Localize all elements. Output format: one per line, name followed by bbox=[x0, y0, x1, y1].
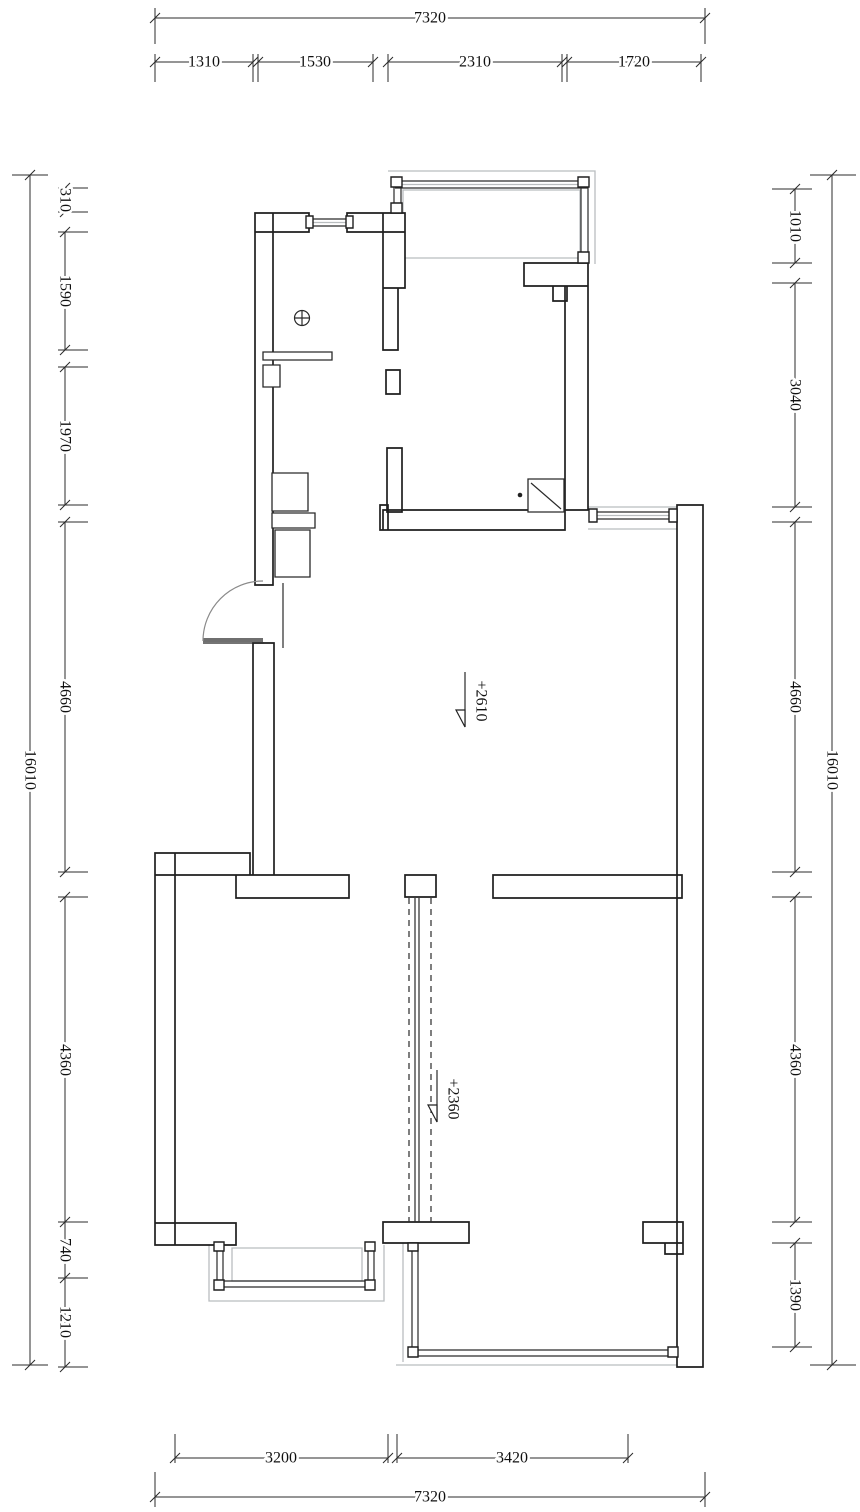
level-mark-2: +2360 bbox=[428, 1070, 462, 1122]
wall-detail-line bbox=[283, 483, 561, 1222]
dim-label: 4360 bbox=[787, 1044, 804, 1076]
dim-label: 4360 bbox=[57, 1044, 74, 1076]
elevation-flag-icon bbox=[456, 710, 465, 727]
dim-line bbox=[170, 1434, 633, 1463]
dim-label: 7320 bbox=[414, 10, 446, 27]
door-swing-arc bbox=[203, 581, 263, 641]
wall-segment bbox=[155, 213, 703, 1367]
dim-label: 16010 bbox=[22, 750, 39, 790]
dim-label: 1310 bbox=[188, 54, 220, 71]
dim-label: 740 bbox=[57, 1238, 74, 1262]
dim-label: 3420 bbox=[496, 1450, 528, 1467]
floorplan-canvas: 7320 1310 1530 2310 1720 3200 3420 7320 … bbox=[0, 0, 860, 1512]
dim-right-chain: 16010 1010 3040 4660 4360 1390 bbox=[772, 170, 856, 1370]
symbols-layer: +2610 +2360 bbox=[203, 310, 522, 1122]
point-marker bbox=[518, 493, 523, 498]
dim-line bbox=[772, 184, 812, 1352]
window-frames-layer bbox=[209, 171, 703, 1365]
elevation-flag-icon bbox=[428, 1105, 437, 1122]
fixture bbox=[263, 352, 564, 577]
window-frame bbox=[209, 171, 703, 1365]
dim-label: 3200 bbox=[265, 1450, 297, 1467]
floorplan-svg: 7320 1310 1530 2310 1720 3200 3420 7320 … bbox=[0, 0, 860, 1512]
dim-bottom-chain: 3200 3420 7320 bbox=[150, 1434, 710, 1507]
dim-label: 310 bbox=[57, 188, 74, 212]
dim-label: 1720 bbox=[618, 54, 650, 71]
dim-label: 4660 bbox=[787, 681, 804, 713]
dim-label: 1530 bbox=[299, 54, 331, 71]
dim-line bbox=[58, 183, 88, 1372]
dim-label: 2310 bbox=[459, 54, 491, 71]
dim-label: 1970 bbox=[57, 420, 74, 452]
dim-label: 7320 bbox=[414, 1489, 446, 1506]
dim-label: 1010 bbox=[787, 210, 804, 242]
dim-left-chain: 16010 310 1590 1970 4660 4360 740 1210 bbox=[12, 170, 88, 1372]
level-mark-label: +2610 bbox=[473, 680, 490, 721]
level-mark-label: +2360 bbox=[445, 1078, 462, 1119]
overhead-wall-dashed-line bbox=[409, 898, 431, 1222]
level-mark-1: +2610 bbox=[456, 672, 490, 727]
dim-top-chain: 7320 1310 1530 2310 1720 bbox=[150, 8, 710, 82]
dim-label: 1210 bbox=[57, 1306, 74, 1338]
dim-label: 16010 bbox=[824, 750, 841, 790]
dim-label: 4660 bbox=[57, 681, 74, 713]
dim-label: 1590 bbox=[57, 275, 74, 307]
dim-label: 1390 bbox=[787, 1279, 804, 1311]
walls-layer bbox=[155, 213, 703, 1367]
dim-label: 3040 bbox=[787, 379, 804, 411]
